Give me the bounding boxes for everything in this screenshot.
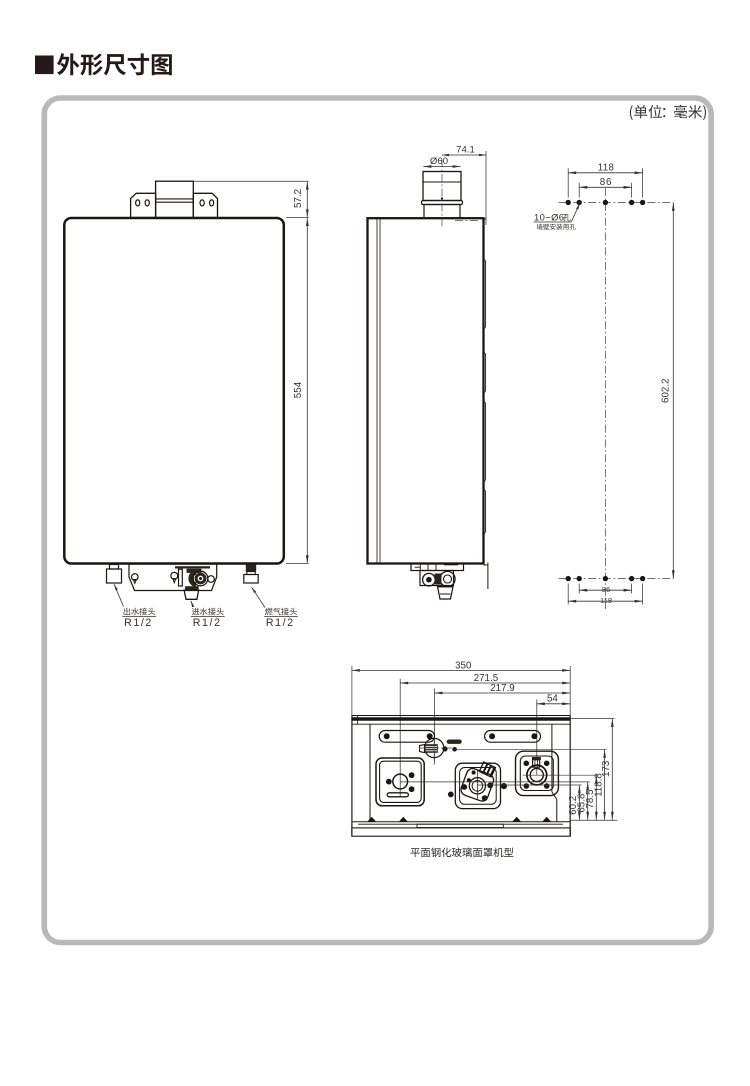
svg-text:R1/2: R1/2 (266, 617, 295, 629)
svg-text:57.2: 57.2 (293, 189, 304, 208)
svg-text:R1/2: R1/2 (124, 617, 153, 629)
svg-text:10−Ø6: 10−Ø6 (534, 212, 564, 223)
svg-text:118: 118 (598, 163, 615, 174)
svg-text:173: 173 (601, 760, 612, 777)
svg-text:86: 86 (602, 585, 610, 594)
svg-text:Ø60: Ø60 (430, 156, 448, 167)
svg-text:350: 350 (455, 660, 472, 671)
svg-text:86: 86 (600, 177, 613, 188)
svg-text:54: 54 (547, 694, 558, 705)
svg-text:554: 554 (293, 381, 304, 398)
svg-text:74.1: 74.1 (456, 145, 475, 156)
svg-text:118: 118 (600, 596, 612, 605)
svg-text:602.2: 602.2 (660, 378, 671, 403)
svg-text:217.9: 217.9 (490, 683, 515, 694)
svg-text:R1/2: R1/2 (193, 617, 222, 629)
